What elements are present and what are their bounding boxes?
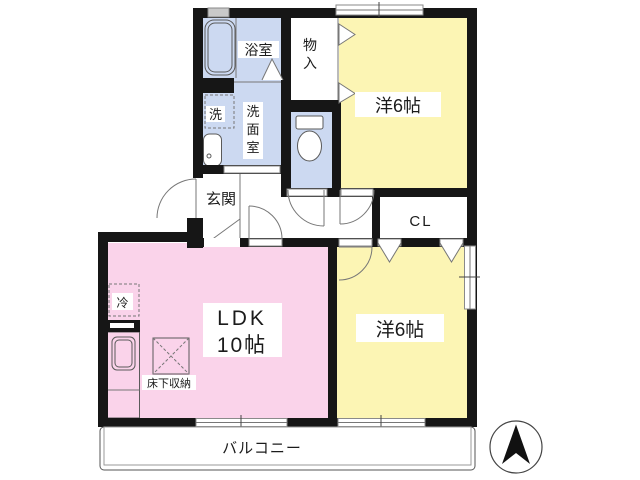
compass [490,421,542,473]
storage-label-char2: 入 [303,55,317,71]
entrance-step-opening [204,238,240,247]
bedroom-bottom-door-opening [339,239,372,246]
storage-label-char1: 物 [303,37,317,53]
closet-label: CL [409,213,432,230]
washroom-label-char1: 洗 [246,104,259,119]
refrigerator-label: 冷 [116,296,128,310]
wall-ldk-top-left [98,232,195,242]
ldk-door-opening [249,239,282,246]
washbasin-icon [204,134,222,166]
washer-label: 洗 [209,107,222,122]
wall-toilet-right [332,100,341,196]
kitchen-partition-slot [110,323,134,328]
ldk-label-line2: 10帖 [217,334,267,357]
floor-plan-canvas: 浴室 物 入 洗 洗 面 室 玄関 CL 洋6帖 洋6帖 LDK 10帖 冷 床… [0,0,640,480]
wall-left [98,232,108,427]
bathroom-label: 浴室 [245,42,273,58]
wall-top [193,8,477,18]
bedroom-top-door-opening [341,189,373,196]
wall-bath-divider [201,78,234,93]
ldk-door-arc [249,206,282,239]
toilet-door-opening [287,189,327,196]
floor-storage-label: 床下収納 [147,376,191,390]
bedroom-bottom-label: 洋6帖 [376,319,425,341]
balcony-label: バルコニー [222,440,302,457]
floor-plan: 浴室 物 入 洗 洗 面 室 玄関 CL 洋6帖 洋6帖 LDK 10帖 冷 床… [0,0,640,480]
bedroom-top-label: 洋6帖 [375,96,421,116]
toilet-tank [296,116,323,129]
ldk-label-line1: LDK [217,307,267,330]
wall-hall-closet [372,197,380,238]
washroom-label-char3: 室 [246,140,259,155]
toilet-icon [298,131,322,161]
bathroom-window [208,8,229,17]
wall-right [467,8,477,427]
wall-ldk-bedroom [328,247,337,418]
entrance-label: 玄関 [206,191,236,208]
washroom-label-char2: 面 [246,122,259,137]
wall-entrance-pier [187,218,203,248]
entrance-door-arc [157,179,196,218]
washroom-door-opening [224,166,280,173]
